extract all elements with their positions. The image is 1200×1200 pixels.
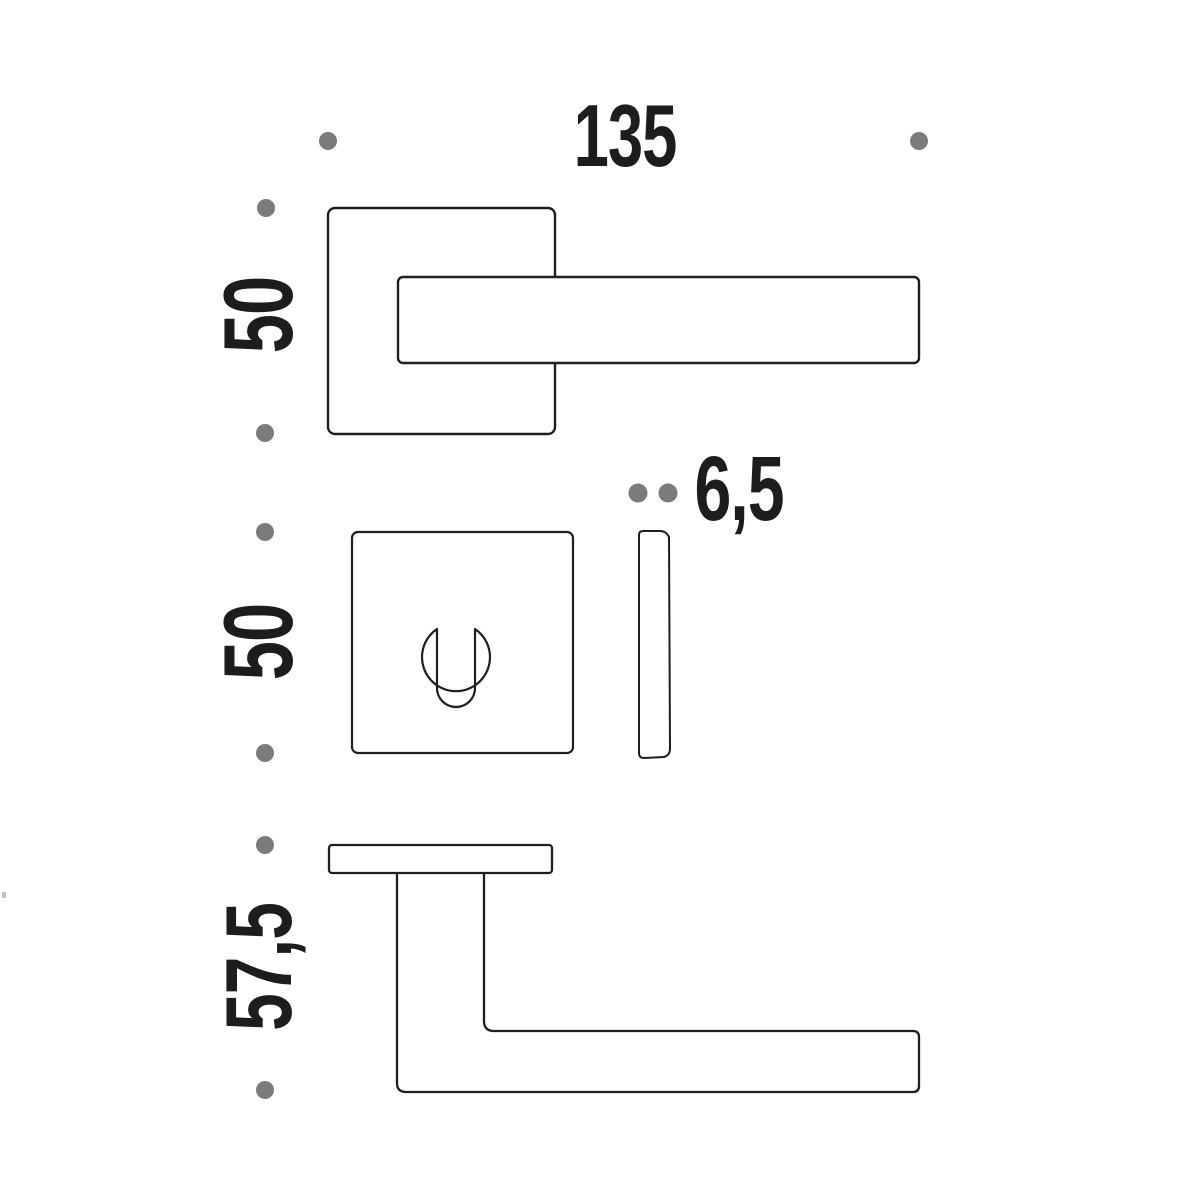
escutcheon-front-view [352, 532, 573, 753]
dimension-dot [659, 484, 678, 503]
dimension-dot [629, 484, 648, 503]
dim-label-escutcheon-height: 50 [209, 604, 307, 680]
dimension-dot [256, 523, 274, 541]
technical-drawing-page: 135 50 50 6,5 57,5 [0, 0, 1200, 1200]
lever-front-view [398, 277, 919, 363]
edge-speck [2, 892, 6, 898]
dimension-dot [910, 132, 928, 150]
dim-label-escutcheon-thickness: 6,5 [694, 443, 783, 535]
dim-label-lever-length: 135 [574, 92, 677, 180]
dimension-dot [256, 836, 274, 854]
dimension-dot [256, 744, 274, 762]
dim-label-rose-height: 50 [209, 277, 307, 353]
dim-label-handle-projection: 57,5 [212, 903, 306, 1031]
lever-side-profile [397, 874, 919, 1092]
dimension-dot [256, 424, 274, 442]
escutcheon-side-profile [639, 531, 670, 758]
dimension-dot [257, 199, 275, 217]
rose-side-view [329, 845, 552, 873]
dimension-dot [319, 132, 337, 150]
dimension-dot [256, 1081, 274, 1099]
